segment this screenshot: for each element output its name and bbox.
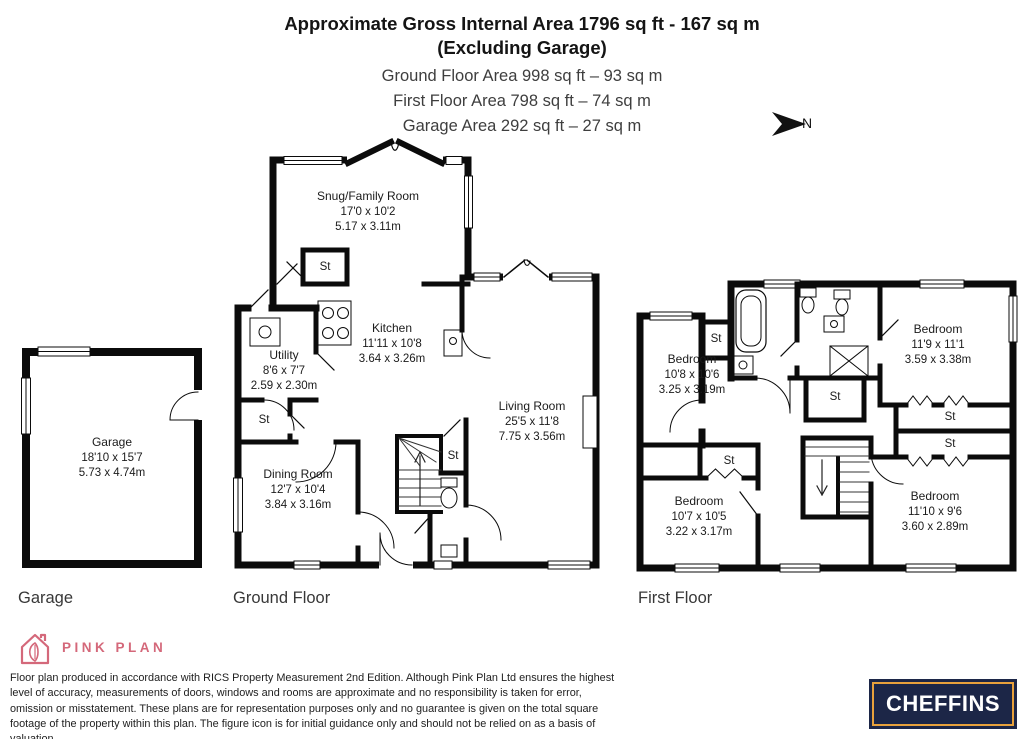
bedroom-back-right-label: Bedroom 11'10 x 9'6 3.60 x 2.89m <box>902 489 968 535</box>
storage-label-wardrobe-2: St <box>945 438 956 450</box>
dining-room-label: Dining Room 12'7 x 10'4 3.84 x 3.16m <box>263 467 332 513</box>
floorplan-page: Approximate Gross Internal Area 1796 sq … <box>0 0 1024 739</box>
ground-floor-caption: Ground Floor <box>233 589 330 608</box>
storage-label-bedroom3: St <box>724 455 735 467</box>
storage-label-airing: St <box>830 391 841 403</box>
living-room-label: Living Room 25'5 x 11'8 7.75 x 3.56m <box>499 399 566 445</box>
storage-label-utility: St <box>259 414 270 426</box>
storage-label-first-left: St <box>711 333 722 345</box>
bedroom-back-left-label: Bedroom 10'7 x 10'5 3.22 x 3.17m <box>666 494 732 540</box>
pink-plan-wordmark: PINK PLAN <box>62 640 166 655</box>
storage-label-hall: St <box>448 450 459 462</box>
kitchen-room-label: Kitchen 11'11 x 10'8 3.64 x 3.26m <box>359 321 425 367</box>
snug-room-label: Snug/Family Room 17'0 x 10'2 5.17 x 3.11… <box>317 189 419 235</box>
pink-plan-house-icon <box>15 629 55 669</box>
disclaimer-text: Floor plan produced in accordance with R… <box>10 671 626 739</box>
north-arrow-icon <box>772 112 806 136</box>
garage-caption: Garage <box>18 589 73 608</box>
cheffins-wordmark: CHEFFINS <box>886 691 1000 717</box>
first-floor-caption: First Floor <box>638 589 712 608</box>
cheffins-logo: CHEFFINS <box>872 682 1014 726</box>
bedroom-front-right-label: Bedroom 11'9 x 11'1 3.59 x 3.38m <box>905 322 971 368</box>
storage-label-wardrobe-1: St <box>945 411 956 423</box>
utility-room-label: Utility 8'6 x 7'7 2.59 x 2.30m <box>251 348 317 394</box>
garage-room-label: Garage 18'10 x 15'7 5.73 x 4.74m <box>79 435 145 481</box>
storage-label-snug: St <box>320 261 331 273</box>
floorplan-graphics <box>0 0 1024 739</box>
bedroom-front-left-label: Bedroom 10'8 x 10'6 3.25 x 3.19m <box>659 352 725 398</box>
